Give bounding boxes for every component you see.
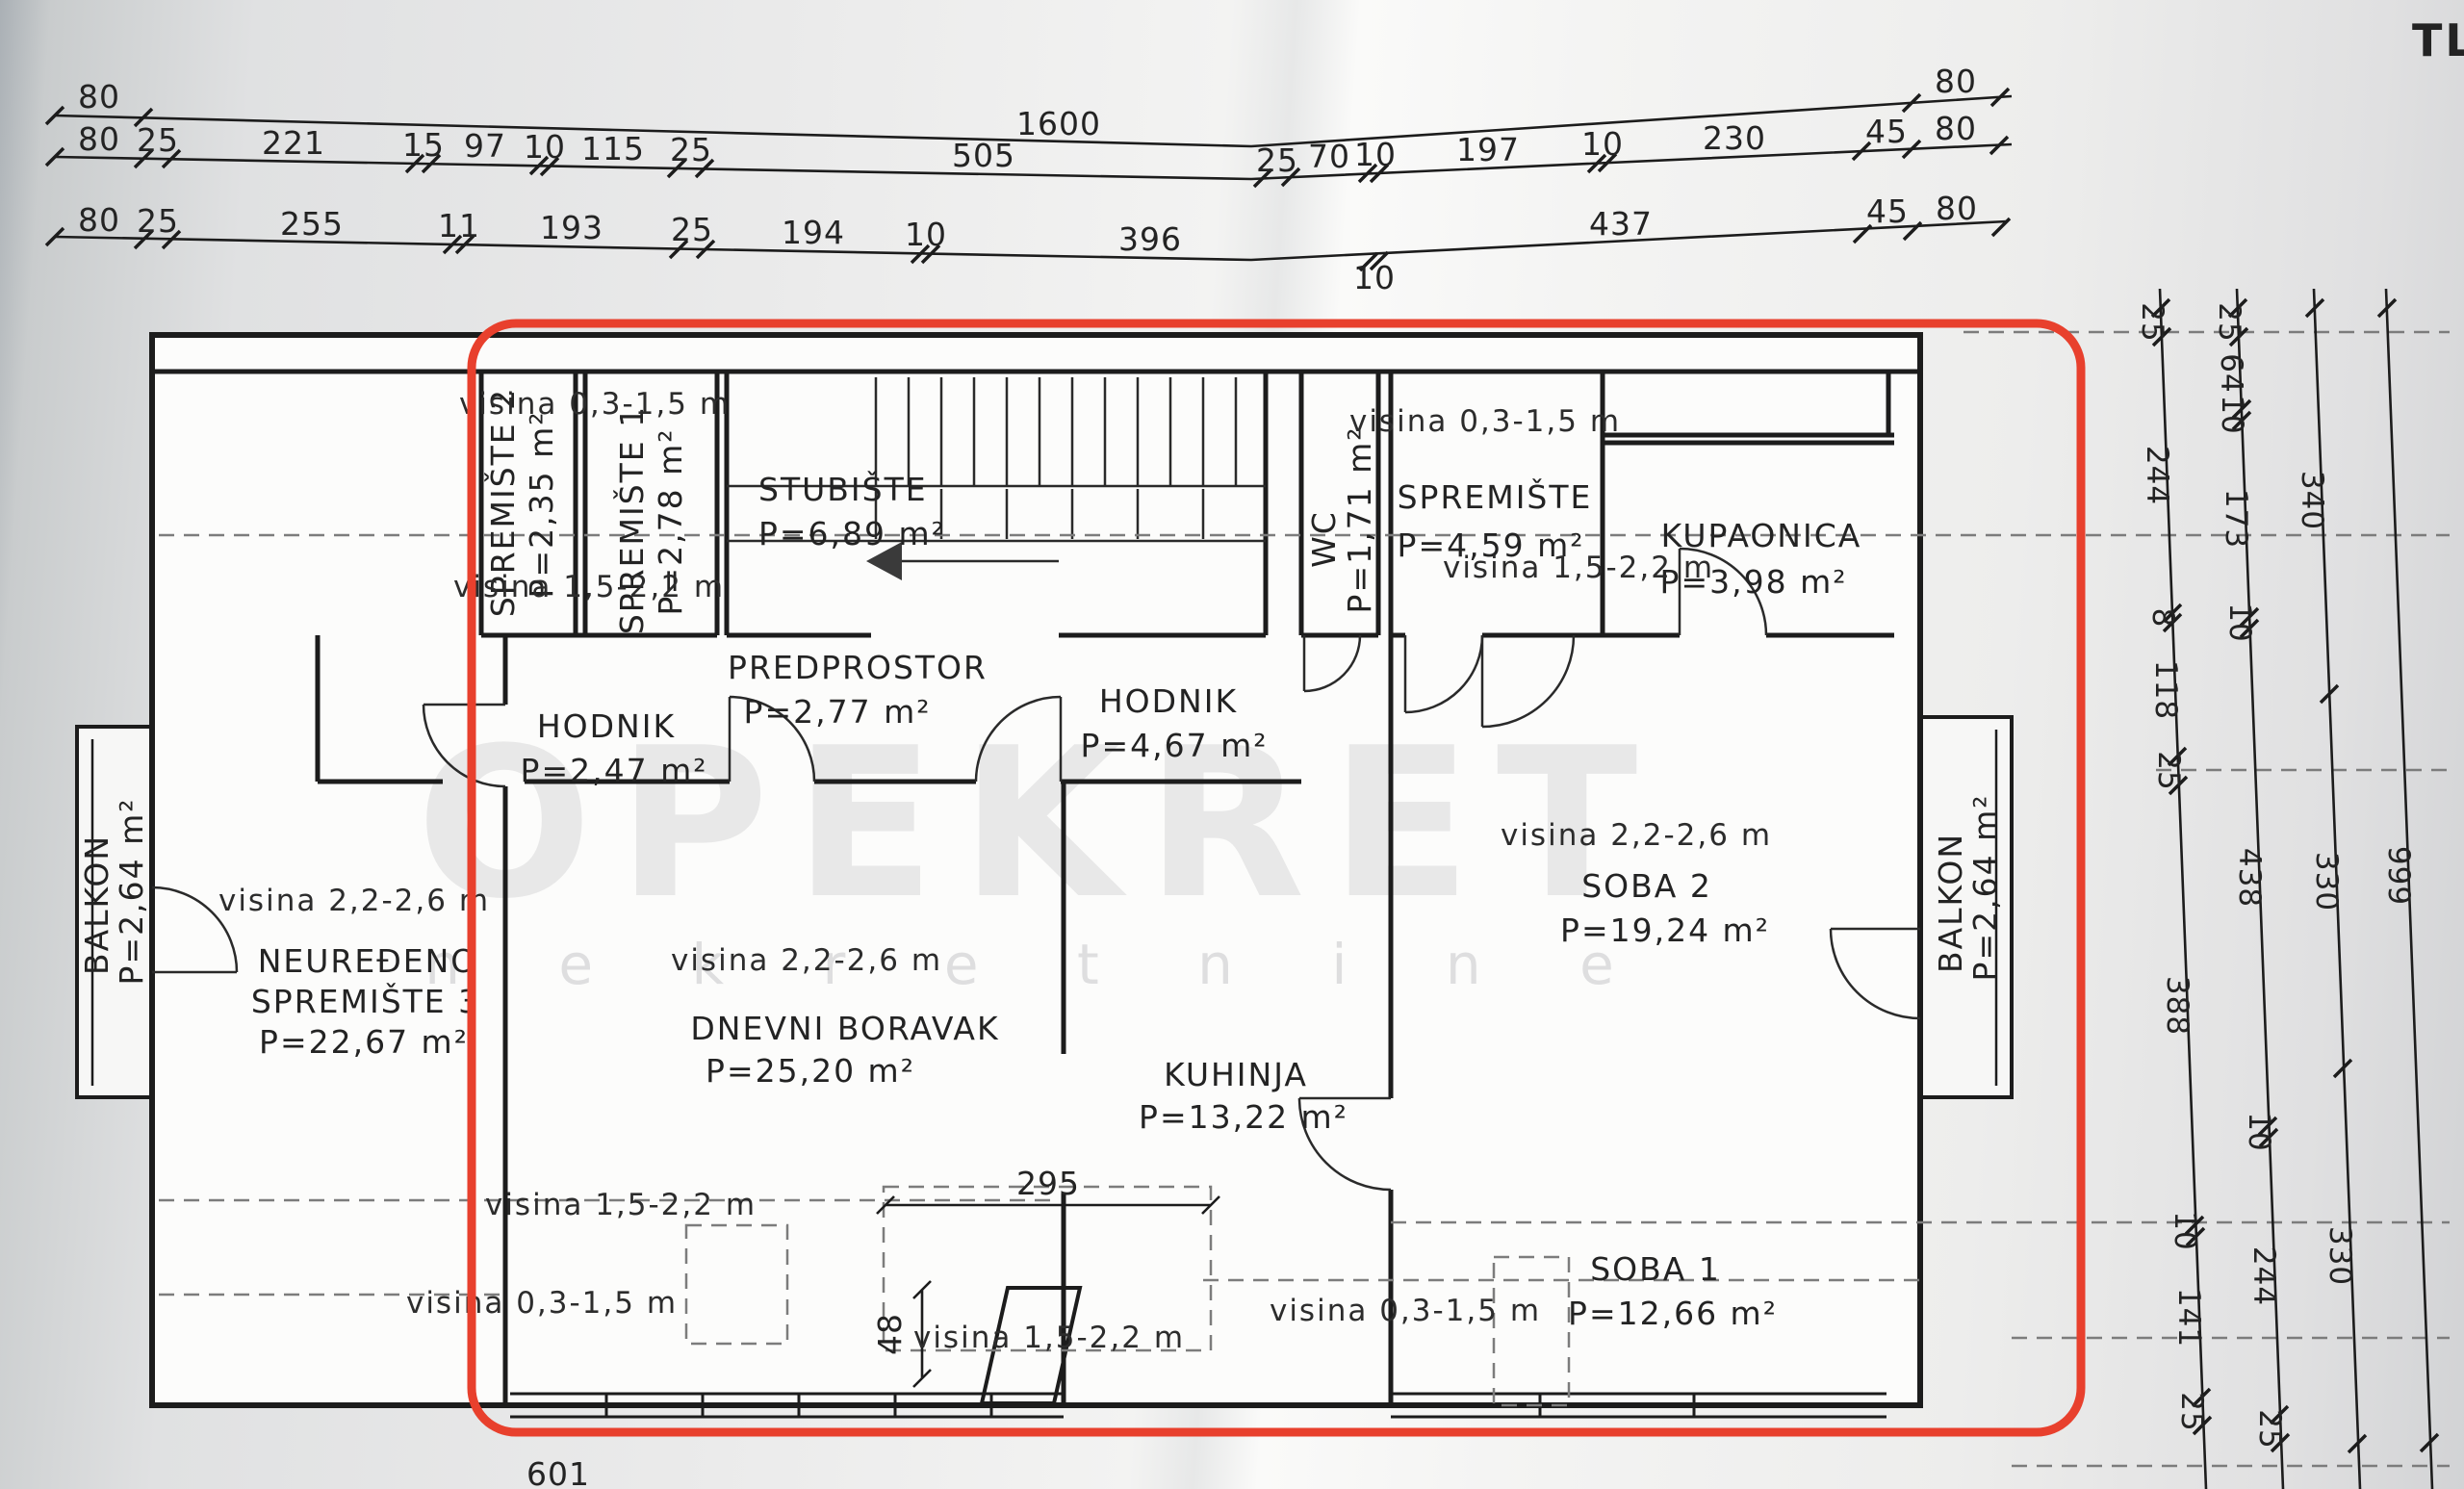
rdim-c2-244: 244 xyxy=(2246,1246,2281,1306)
dim-295: 295 xyxy=(1016,1165,1080,1202)
dim-row3-396: 396 xyxy=(1118,220,1182,258)
dim-row1-1600: 1600 xyxy=(1016,105,1101,142)
room-balkon-right-area: P=2,64 m² xyxy=(1966,794,2004,982)
watermark: OPEKRET n e k r e t n i n e xyxy=(417,703,1663,997)
right-chain-4: 999 xyxy=(2381,846,2416,906)
rdim-c1-388: 388 xyxy=(2160,976,2194,1036)
room-predprostor-name: PREDPROSTOR xyxy=(728,649,988,686)
rdim-c2-438: 438 xyxy=(2232,848,2267,908)
rdim-c2-10b: 10 xyxy=(2222,603,2257,642)
rdim-c2-10c: 10 xyxy=(2242,1112,2276,1151)
visina-spremiste-top: visina 0,3-1,5 m xyxy=(1349,404,1621,439)
visina-dnevni: visina 2,2-2,6 m xyxy=(671,943,942,978)
dim-row2-221: 221 xyxy=(262,124,325,162)
dim-row2-197: 197 xyxy=(1456,131,1520,168)
rdim-c2-64: 64 xyxy=(2214,353,2248,393)
dim-row2-15: 15 xyxy=(402,126,445,164)
rdim-c1-244: 244 xyxy=(2140,446,2174,505)
visina-left-bottom: visina 0,3-1,5 m xyxy=(406,1286,678,1321)
room-stubiste-name: STUBIŠTE xyxy=(758,470,928,508)
visina-right-bottom: visina 0,3-1,5 m xyxy=(1270,1294,1541,1328)
dim-row3-80b: 80 xyxy=(1936,190,1978,227)
dim-row3-11: 11 xyxy=(438,207,480,244)
dim-row3-10a: 10 xyxy=(905,216,947,253)
room-neuredjeno-line2: SPREMIŠTE 3 xyxy=(251,982,480,1020)
right-dimension-chains: 25 244 8 118 25 388 10 141 25 25 64 10 1… xyxy=(2135,289,2438,1489)
visina-storage-bottom: visina 1,5-2,2 m xyxy=(453,570,725,604)
rdim-c3-330b: 330 xyxy=(2323,1226,2357,1286)
dim-row3-437: 437 xyxy=(1589,205,1653,243)
room-balkon-right-name: BALKON xyxy=(1932,833,1969,973)
floor-plan-sheet: OPEKRET n e k r e t n i n e xyxy=(0,0,2464,1489)
rdim-c2-10a: 10 xyxy=(2215,395,2249,434)
dim-row2-10b: 10 xyxy=(1354,136,1397,173)
rdim-c3-340: 340 xyxy=(2295,471,2329,530)
rdim-c1-8: 8 xyxy=(2145,608,2180,629)
right-chain-2: 25 64 10 173 10 438 10 244 25 xyxy=(2212,302,2287,1449)
rdim-c1-25c: 25 xyxy=(2174,1392,2209,1431)
rdim-c2-25b: 25 xyxy=(2252,1409,2287,1449)
rdim-c2-173: 173 xyxy=(2219,489,2253,549)
top-dimension-row1: 80 1600 80 xyxy=(78,63,1977,142)
dim-row2-25b: 25 xyxy=(670,131,712,168)
visina-center-bottom: visina 1,5-2,2 m xyxy=(913,1321,1185,1355)
room-spremiste-name: SPREMIŠTE xyxy=(1398,477,1593,516)
floor-plan-drawing: OPEKRET n e k r e t n i n e xyxy=(0,0,2464,1489)
rdim-c2-25a: 25 xyxy=(2212,302,2246,342)
rdim-c1-25a: 25 xyxy=(2135,302,2169,342)
dim-601: 601 xyxy=(526,1455,590,1489)
watermark-subtitle: n e k r e t n i n e xyxy=(424,932,1655,997)
room-soba2-name: SOBA 2 xyxy=(1581,867,1712,905)
room-wc-area: P=1,71 m² xyxy=(1341,426,1378,614)
room-kuhinja-name: KUHINJA xyxy=(1164,1056,1308,1093)
room-balkon-left-name: BALKON xyxy=(78,834,115,975)
room-soba1-name: SOBA 1 xyxy=(1590,1250,1721,1288)
visina-neuredjeno: visina 2,2-2,6 m xyxy=(218,884,490,918)
dim-row3-25b: 25 xyxy=(671,211,713,248)
room-wc-name: WC xyxy=(1305,510,1343,568)
room-neuredjeno-line1: NEUREĐENO xyxy=(258,942,478,980)
rdim-c1-118: 118 xyxy=(2148,660,2183,720)
visina-left-mid: visina 1,5-2,2 m xyxy=(485,1188,757,1222)
dim-row2-25a: 25 xyxy=(137,121,179,159)
dim-row3-10b: 10 xyxy=(1353,259,1396,296)
dim-row2-80b: 80 xyxy=(1935,110,1977,147)
dim-row2-505: 505 xyxy=(952,137,1015,174)
dim-row2-230: 230 xyxy=(1703,119,1766,157)
room-dnevni-name: DNEVNI BORAVAK xyxy=(690,1010,999,1047)
dim-row3-80: 80 xyxy=(78,201,120,239)
room-soba1-area: P=12,66 m² xyxy=(1568,1295,1778,1332)
rdim-c1-10: 10 xyxy=(2168,1211,2202,1250)
dim-row2-10a: 10 xyxy=(524,128,566,166)
room-stubiste-area: P=6,89 m² xyxy=(758,515,946,552)
dim-row3-45: 45 xyxy=(1866,193,1909,230)
room-predprostor-area: P=2,77 m² xyxy=(744,693,932,731)
dim-row3-194: 194 xyxy=(782,214,845,251)
visina-soba2: visina 2,2-2,6 m xyxy=(1501,818,1772,853)
dim-row3-25a: 25 xyxy=(137,202,179,240)
top-dimension-chains: 80 1600 80 80 25 221 15 97 10 115 25 505… xyxy=(46,63,2012,296)
visina-spremiste-bottom: visina 1,5-2,2 m xyxy=(1443,551,1714,585)
visina-storage-top: visina 0,3-1,5 m xyxy=(459,387,731,422)
room-neuredjeno-area: P=22,67 m² xyxy=(259,1023,469,1061)
room-kuhinja-area: P=13,22 m² xyxy=(1139,1098,1348,1136)
dim-row2-80: 80 xyxy=(78,120,120,158)
dim-row2-70: 70 xyxy=(1308,138,1350,175)
dim-row2-10c: 10 xyxy=(1581,125,1624,163)
room-kupaonica-name: KUPAONICA xyxy=(1661,517,1862,554)
rdim-c4-999: 999 xyxy=(2381,846,2416,906)
dim-row2-115: 115 xyxy=(581,130,645,167)
room-dnevni-area: P=25,20 m² xyxy=(706,1052,915,1090)
rdim-c1-141: 141 xyxy=(2171,1288,2206,1348)
dim-row3-255: 255 xyxy=(280,205,344,243)
dim-row3-193: 193 xyxy=(540,209,603,246)
dim-48: 48 xyxy=(871,1313,909,1355)
room-hodnik2-name: HODNIK xyxy=(1099,682,1238,720)
dim-row2-25c: 25 xyxy=(1256,141,1298,179)
dim-row2-97: 97 xyxy=(464,127,506,165)
dim-row1-80a: 80 xyxy=(78,78,120,116)
room-hodnik1-name: HODNIK xyxy=(537,707,676,745)
room-soba2-area: P=19,24 m² xyxy=(1560,911,1770,949)
room-hodnik1-area: P=2,47 m² xyxy=(521,752,708,789)
room-balkon-left-area: P=2,64 m² xyxy=(113,798,150,986)
dim-row1-80b: 80 xyxy=(1935,63,1977,100)
dim-row2-45: 45 xyxy=(1865,113,1908,150)
sheet-title: TLO xyxy=(2412,14,2464,66)
rdim-c1-25b: 25 xyxy=(2151,751,2186,790)
room-hodnik2-area: P=4,67 m² xyxy=(1081,727,1269,764)
rdim-c3-330a: 330 xyxy=(2309,852,2344,911)
